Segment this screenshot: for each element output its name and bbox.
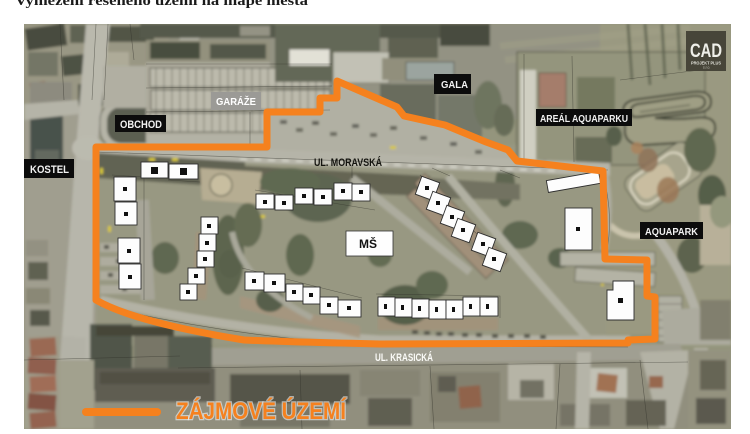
svg-text:GALA: GALA <box>441 79 468 91</box>
svg-text:UL. KRASICKÁ: UL. KRASICKÁ <box>375 351 433 364</box>
svg-text:KOSTEL: KOSTEL <box>30 164 69 176</box>
svg-text:GARÁŽE: GARÁŽE <box>216 95 256 108</box>
svg-text:Vymezení řešeného území na map: Vymezení řešeného území na mapě města <box>15 0 308 9</box>
svg-text:OBCHOD: OBCHOD <box>120 119 162 131</box>
svg-text:UL. MORAVSKÁ: UL. MORAVSKÁ <box>314 156 382 169</box>
svg-text:AREÁL AQUAPARKU: AREÁL AQUAPARKU <box>540 112 628 125</box>
svg-text:MŠ: MŠ <box>359 236 377 251</box>
svg-text:CAD: CAD <box>690 41 722 62</box>
svg-text:s.r.o.: s.r.o. <box>703 66 710 70</box>
svg-text:ZÁJMOVÉ ÚZEMÍ: ZÁJMOVÉ ÚZEMÍ <box>176 397 347 425</box>
svg-text:AQUAPARK: AQUAPARK <box>645 226 698 238</box>
